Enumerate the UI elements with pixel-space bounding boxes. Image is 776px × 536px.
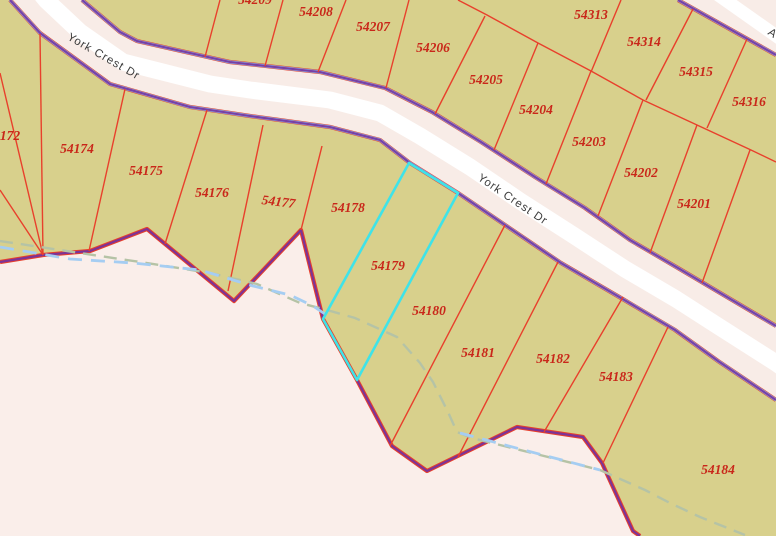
- parcel-label-54316: 54316: [732, 94, 766, 109]
- map-canvas[interactable]: 54209 54208 54207 54206 54205 54204 5420…: [0, 0, 776, 536]
- parcel-label-54176: 54176: [195, 185, 229, 200]
- parcel-label-172: 172: [0, 128, 20, 143]
- parcel-label-54175: 54175: [129, 163, 163, 178]
- parcel-map[interactable]: 54209 54208 54207 54206 54205 54204 5420…: [0, 0, 776, 536]
- parcel-label-54178: 54178: [331, 200, 365, 215]
- parcel-label-54201: 54201: [677, 196, 711, 211]
- parcel-label-54179: 54179: [371, 258, 405, 273]
- parcel-label-54180: 54180: [412, 303, 446, 318]
- parcel-label-54184: 54184: [701, 462, 735, 477]
- parcel-label-54207: 54207: [356, 19, 391, 34]
- parcel-label-54203: 54203: [572, 134, 606, 149]
- parcel-label-54204: 54204: [519, 102, 553, 117]
- parcel-label-54315: 54315: [679, 64, 713, 79]
- parcel-label-54205: 54205: [469, 72, 503, 87]
- parcel-label-54202: 54202: [624, 165, 658, 180]
- parcel-label-54313: 54313: [574, 7, 608, 22]
- parcel-label-54183: 54183: [599, 369, 633, 384]
- parcel-label-54314: 54314: [627, 34, 661, 49]
- parcel-label-54181: 54181: [461, 345, 495, 360]
- parcel-label-54174: 54174: [60, 141, 94, 156]
- parcel-label-54182: 54182: [536, 351, 570, 366]
- parcel-label-54206: 54206: [416, 40, 450, 55]
- parcel-label-54209: 54209: [238, 0, 272, 7]
- parcel-label-54208: 54208: [299, 4, 333, 19]
